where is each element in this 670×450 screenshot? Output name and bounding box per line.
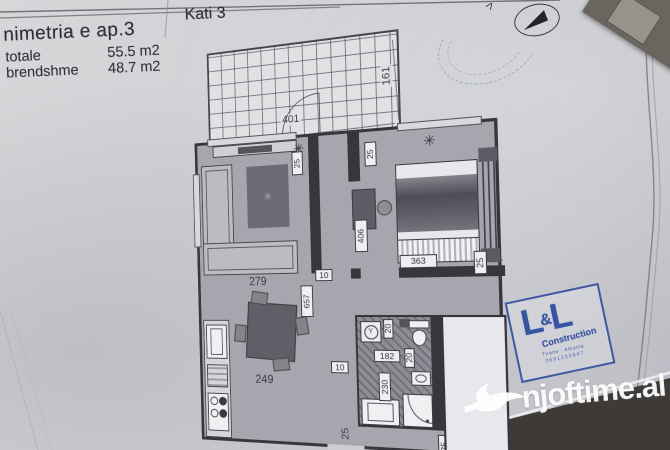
sofa-bottom <box>203 240 298 275</box>
area-internal-value: 48.7 m2 <box>108 59 161 77</box>
burner-icon <box>210 396 218 405</box>
chair <box>272 357 290 371</box>
page-title: nimetria e ap.3 <box>3 19 136 47</box>
nightstand <box>478 147 497 162</box>
chair <box>234 324 247 343</box>
apartment-outline: ✳ ✳ 25 279 657 10 249 25 <box>195 118 508 450</box>
dim-living-width: 279 <box>247 276 268 289</box>
bed-duvet <box>396 174 478 233</box>
dim-line-balcony-depth <box>393 40 399 121</box>
floor-plan-photo: nimetria e ap.3 Kati 3 totale 55.5 m2 br… <box>0 0 670 450</box>
dim-bath-b: 20 <box>404 348 415 368</box>
dim-bath-width: 182 <box>374 350 401 363</box>
living-bedroom-wall <box>308 136 322 273</box>
washing-machine-icon: Y <box>360 321 382 343</box>
dim-bedroom-corner: 25 <box>473 251 487 275</box>
stove <box>208 392 230 431</box>
dim-apartment-depth: 657 <box>301 285 314 317</box>
dim-bedroom-wall: 25 <box>364 141 377 166</box>
burner-icon <box>219 409 227 418</box>
dim-wall-gap-b: 10 <box>331 361 349 373</box>
tv <box>238 145 272 154</box>
plant-icon-2: ✳ <box>423 132 436 148</box>
basin <box>415 374 427 383</box>
dim-entry: 25 <box>340 426 352 442</box>
decor-icon: ✳ <box>263 189 272 203</box>
shower <box>402 394 433 429</box>
dim-living-wall: 25 <box>291 151 303 175</box>
bathroom-sink <box>411 371 431 386</box>
dining-table <box>246 302 297 362</box>
floor-label: Kati 3 <box>184 5 226 25</box>
kitchen-sink <box>206 325 228 359</box>
corner-fold-line <box>0 310 38 450</box>
bed <box>395 159 480 263</box>
chair <box>251 291 268 306</box>
bathroom: Y <box>355 315 436 430</box>
balcony-door-arc <box>282 93 320 136</box>
coffee-table-rug: ✳ <box>246 164 289 228</box>
dim-bath-depth: 230 <box>378 372 391 401</box>
shower-drain-icon <box>426 419 429 422</box>
area-internal-label: brendshme <box>6 61 105 81</box>
washer-drum: Y <box>364 325 378 339</box>
dishwasher <box>207 364 228 387</box>
dim-bath-a: 20 <box>383 319 394 339</box>
chair <box>295 316 310 335</box>
bedroom-bottom-wall-a <box>351 268 361 278</box>
corner-fold-line-2 <box>8 300 52 450</box>
watermark-text: njoftime.al <box>520 367 667 415</box>
sink-basin <box>210 328 223 355</box>
dim-wall-gap-a: 10 <box>315 269 333 281</box>
dim-bedroom-width: 363 <box>400 254 438 268</box>
living-side-window <box>193 174 202 247</box>
toilet-bowl <box>412 330 427 347</box>
bathtub <box>361 398 400 426</box>
dim-kitchen-width: 249 <box>253 373 275 386</box>
swallow-bird-icon <box>460 377 529 419</box>
entrance-opening <box>327 444 364 450</box>
bathtub-inner <box>367 403 394 423</box>
radiator <box>482 160 500 251</box>
burner-icon <box>219 397 227 406</box>
sofa-cushion-2 <box>207 245 293 271</box>
dim-bedroom-depth: 406 <box>354 219 368 252</box>
desk-chair <box>377 200 393 216</box>
bedroom-wall-stub <box>347 133 360 182</box>
burner-icon <box>211 409 219 418</box>
toilet-tank <box>409 320 430 328</box>
